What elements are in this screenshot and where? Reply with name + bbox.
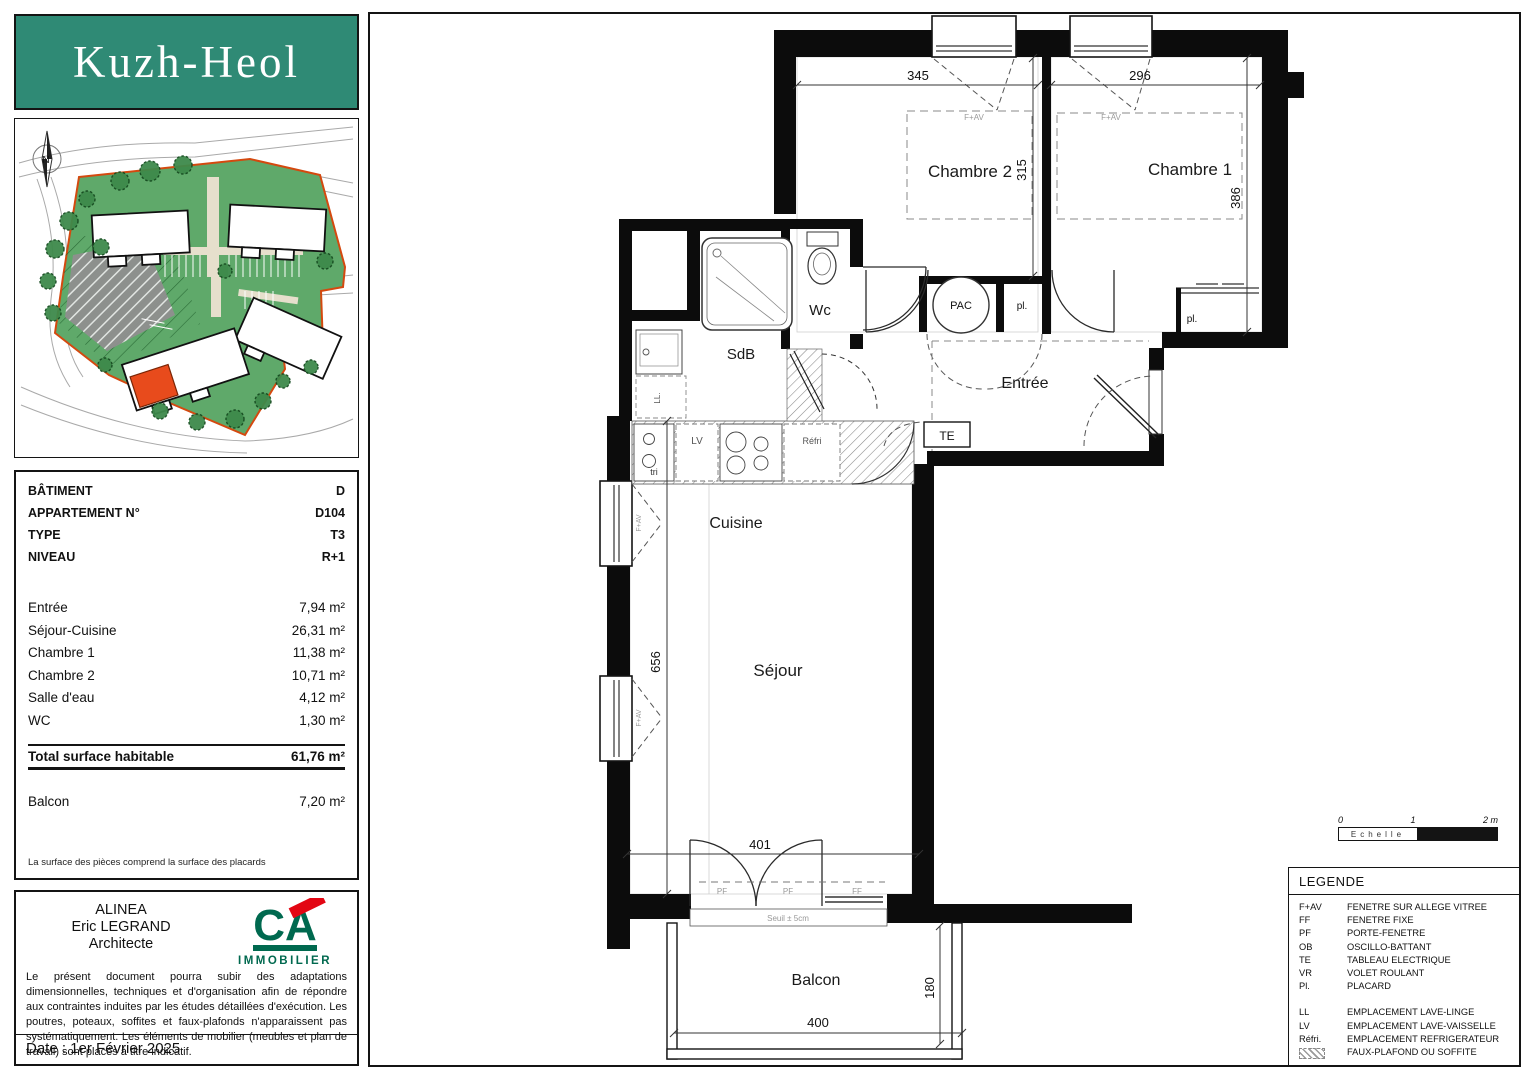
site-plan: N: [14, 118, 359, 458]
area-row: Séjour-Cuisine26,31 m²: [28, 620, 345, 643]
ca-logo-subtitle: IMMOBILIER: [238, 955, 332, 967]
room-label-balcon: Balcon: [792, 972, 841, 989]
balcony-area-row: Balcon7,20 m²: [28, 794, 345, 809]
architect-panel: ALINEA Eric LEGRAND Architecte CA IMMOBI…: [14, 890, 359, 1066]
dim-chambre1-width: 296: [1129, 68, 1151, 83]
legend-item: OBOSCILLO-BATTANT: [1299, 941, 1519, 954]
info-row: TYPET3: [28, 524, 345, 546]
room-areas-list: Entrée7,94 m² Séjour-Cuisine26,31 m² Cha…: [28, 597, 345, 732]
window-north-1: F+AV: [932, 16, 1016, 122]
window-tag: F+AV: [964, 113, 984, 122]
legend-item: Pl.PLACARD: [1299, 980, 1519, 993]
area-row: WC1,30 m²: [28, 710, 345, 733]
door-chambre1: [1052, 270, 1114, 332]
legend-item: Réfri.EMPLACEMENT REFRIGERATEUR: [1299, 1033, 1519, 1046]
area-row: Salle d'eau4,12 m²: [28, 687, 345, 710]
surface-note: La surface des pièces comprend la surfac…: [28, 857, 266, 868]
dim-bay-width: 401: [749, 837, 771, 852]
door-wc: [863, 267, 926, 330]
legend-title: LEGENDE: [1299, 874, 1519, 889]
window-tag: F+AV: [636, 514, 643, 532]
placard-chambre2-label: pl.: [1017, 301, 1028, 312]
wc-fixtures: [807, 232, 838, 284]
dim-chambre2-depth: 315: [1014, 159, 1029, 181]
waste-sorting-label: tri: [650, 467, 658, 477]
dim-chambre2-width: 345: [907, 68, 929, 83]
scale-ticks: 0 1 2 m: [1338, 815, 1498, 825]
area-row: Chambre 111,38 m²: [28, 642, 345, 665]
bathroom-fixtures: LL.: [636, 238, 877, 421]
legend-item: PFPORTE-FENETRE: [1299, 927, 1519, 940]
room-label-entree: Entrée: [1001, 375, 1048, 392]
pf-tag: PF: [783, 887, 793, 896]
balcony-bay: PF PF FF Seuil ± 5cm: [690, 840, 887, 926]
north-label: N: [42, 155, 49, 166]
legend-item: F+AVFENETRE SUR ALLEGE VITREE: [1299, 901, 1519, 914]
legend-item: FFFENETRE FIXE: [1299, 914, 1519, 927]
info-row: BÂTIMENTD: [28, 480, 345, 502]
dim-balcon-depth: 180: [922, 977, 937, 999]
pac-unit: PAC: [933, 277, 989, 333]
window-tag: F+AV: [636, 709, 643, 727]
door-chambre2: [866, 270, 928, 332]
legend-item: FAUX-PLAFOND OU SOFFITE: [1299, 1046, 1519, 1063]
seuil-label: Seuil ± 5cm: [767, 914, 809, 923]
ff-tag: FF: [852, 887, 862, 896]
pf-tag: PF: [717, 887, 727, 896]
plan-date: Date : 1er Février 2025: [16, 1034, 357, 1064]
legend-item: TETABLEAU ELECTRIQUE: [1299, 954, 1519, 967]
scale-black-segment: [1418, 827, 1498, 841]
faux-plafond-hatch-icon: [1299, 1046, 1347, 1063]
info-row: APPARTEMENT N°D104: [28, 502, 345, 524]
site-plan-drawing: N: [15, 119, 356, 455]
ca-immobilier-logo-icon: CA IMMOBILIER: [223, 898, 347, 968]
legend-panel: LEGENDE F+AVFENETRE SUR ALLEGE VITREE FF…: [1288, 867, 1519, 1065]
info-row: NIVEAUR+1: [28, 546, 345, 568]
kitchen-counter: tri LV Réfri: [632, 421, 914, 484]
room-label-cuisine: Cuisine: [709, 515, 762, 532]
program-logo-text: Kuzh-Heol: [73, 36, 300, 88]
legend-item: LVEMPLACEMENT LAVE-VAISSELLE: [1299, 1020, 1519, 1033]
window-west-2: F+AV: [600, 676, 662, 761]
scale-label: Echelle: [1338, 827, 1418, 841]
room-label-sdb: SdB: [727, 346, 755, 363]
ca-logo-bar: [253, 945, 317, 951]
washer-label: LL.: [653, 392, 662, 403]
balcony: [667, 923, 962, 1059]
room-label-chambre2: Chambre 2: [928, 162, 1012, 181]
area-row: Chambre 210,71 m²: [28, 665, 345, 688]
pac-label: PAC: [950, 300, 972, 312]
area-row: Entrée7,94 m²: [28, 597, 345, 620]
dimension-lines: [623, 54, 1264, 1048]
electrical-panel-label: TE: [939, 429, 954, 443]
dimension-labels: 345 296 315 386 656 401 400 180: [648, 68, 1243, 1030]
legend-item: LLEMPLACEMENT LAVE-LINGE: [1299, 1006, 1519, 1019]
room-label-sejour: Séjour: [753, 661, 802, 680]
dishwasher-label: LV: [691, 436, 703, 447]
room-label-chambre1: Chambre 1: [1148, 160, 1232, 179]
fridge-label: Réfri: [802, 436, 821, 446]
room-label-wc: Wc: [809, 302, 831, 319]
placard-chambre1-label: pl.: [1187, 314, 1198, 325]
window-tag: F+AV: [1101, 113, 1121, 122]
scale-bar: 0 1 2 m Echelle: [1338, 815, 1498, 841]
floor-plan-sheet: F+AV F+AV F+AV F+AV: [368, 12, 1521, 1067]
legend-item: VRVOLET ROULANT: [1299, 967, 1519, 980]
program-logo: Kuzh-Heol: [14, 14, 359, 110]
apartment-info-panel: BÂTIMENTD APPARTEMENT N°D104 TYPET3 NIVE…: [14, 470, 359, 880]
total-surface-row: Total surface habitable61,76 m²: [28, 744, 345, 770]
north-arrow-icon: N: [33, 131, 61, 187]
architect-name-block: ALINEA Eric LEGRAND Architecte: [26, 898, 216, 953]
dim-chambre1-depth: 386: [1228, 187, 1243, 209]
dim-balcon-width: 400: [807, 1015, 829, 1030]
window-west-1: F+AV: [600, 481, 662, 566]
dim-sejour-height: 656: [648, 651, 663, 673]
